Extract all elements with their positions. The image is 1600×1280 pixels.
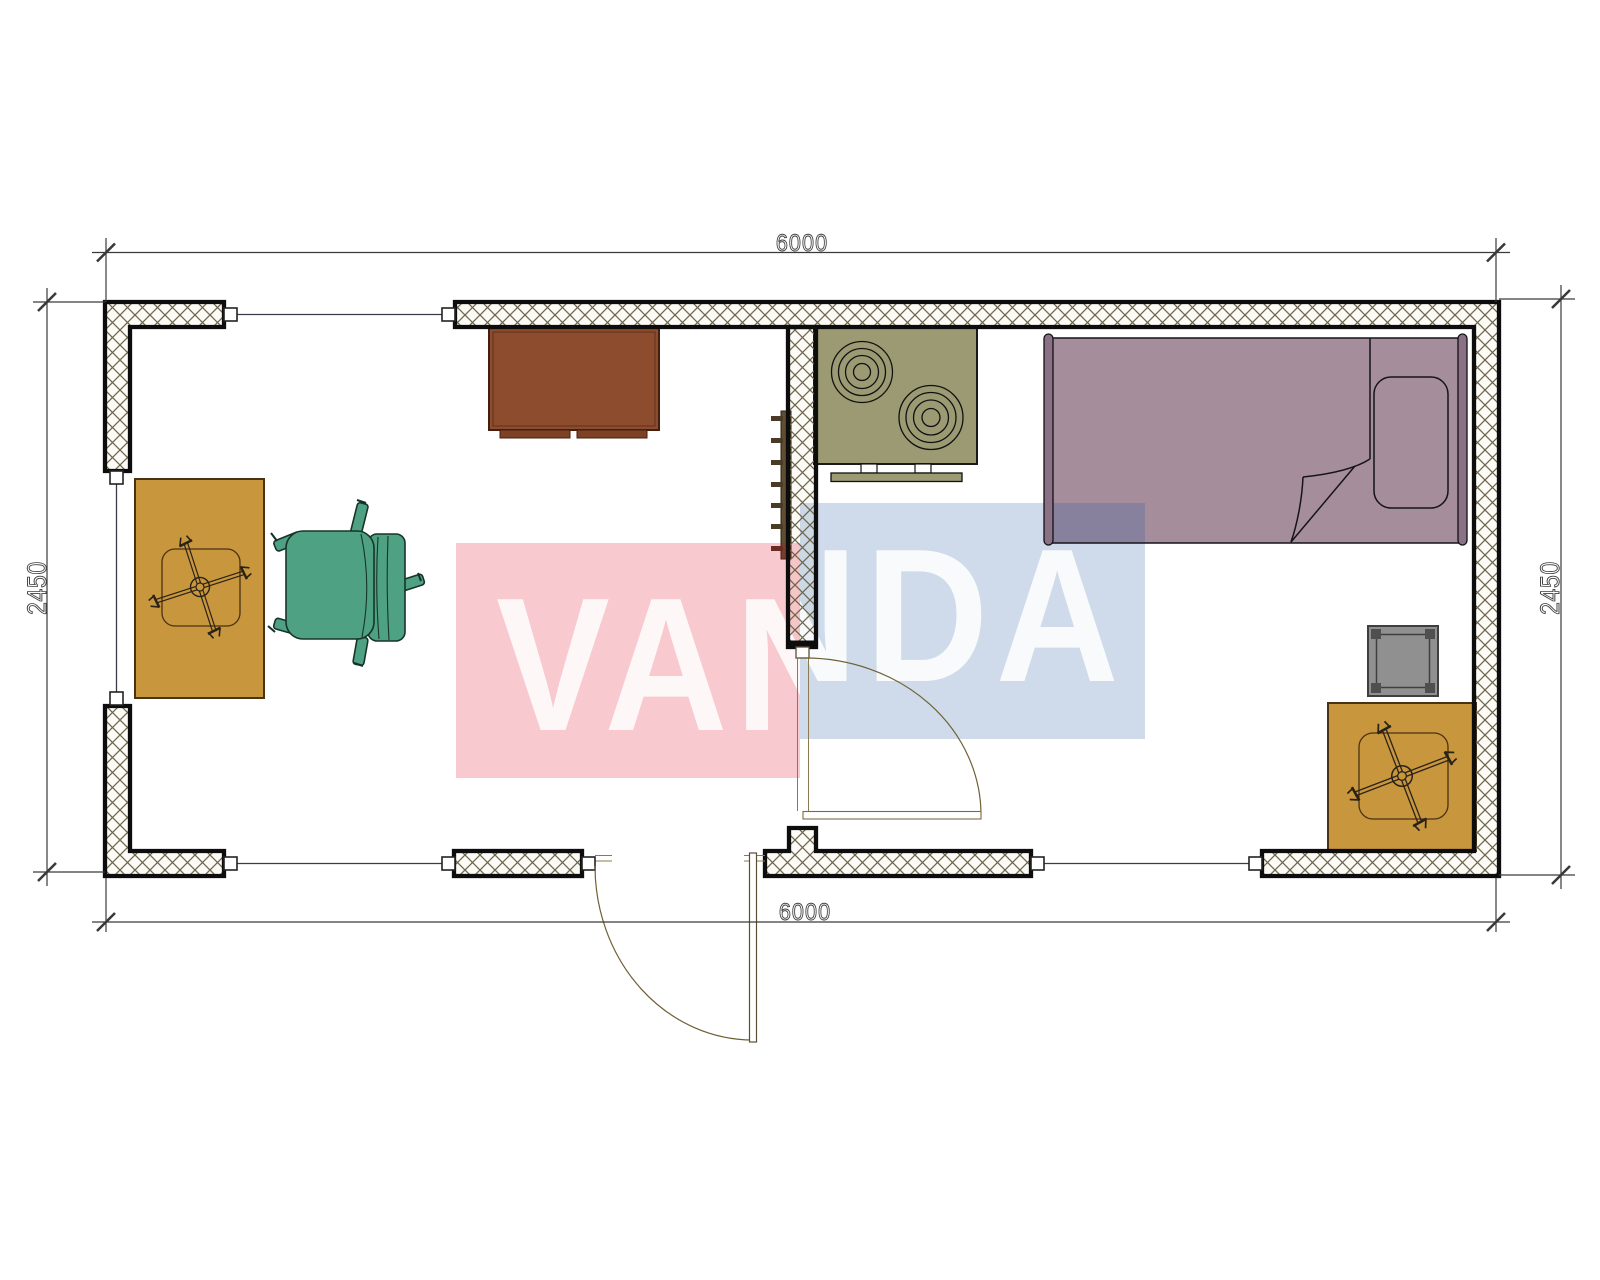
svg-text:6000: 6000 bbox=[776, 229, 828, 256]
svg-text:2450: 2450 bbox=[22, 561, 52, 615]
svg-text:6000: 6000 bbox=[779, 898, 831, 925]
svg-text:2450: 2450 bbox=[1535, 561, 1565, 615]
